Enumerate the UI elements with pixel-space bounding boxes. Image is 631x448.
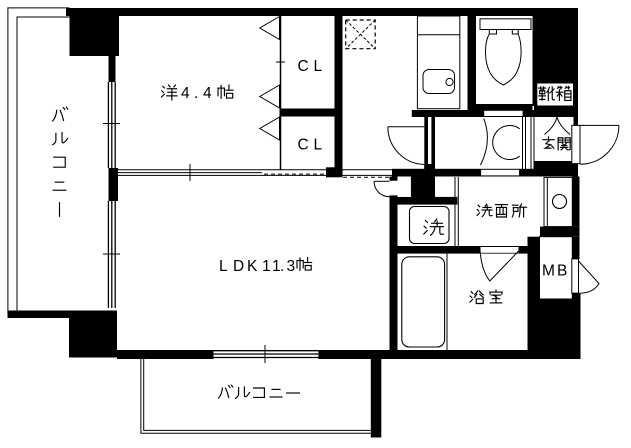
svg-text:4.4: 4.4 xyxy=(181,85,212,102)
svg-text:MB: MB xyxy=(542,263,567,280)
